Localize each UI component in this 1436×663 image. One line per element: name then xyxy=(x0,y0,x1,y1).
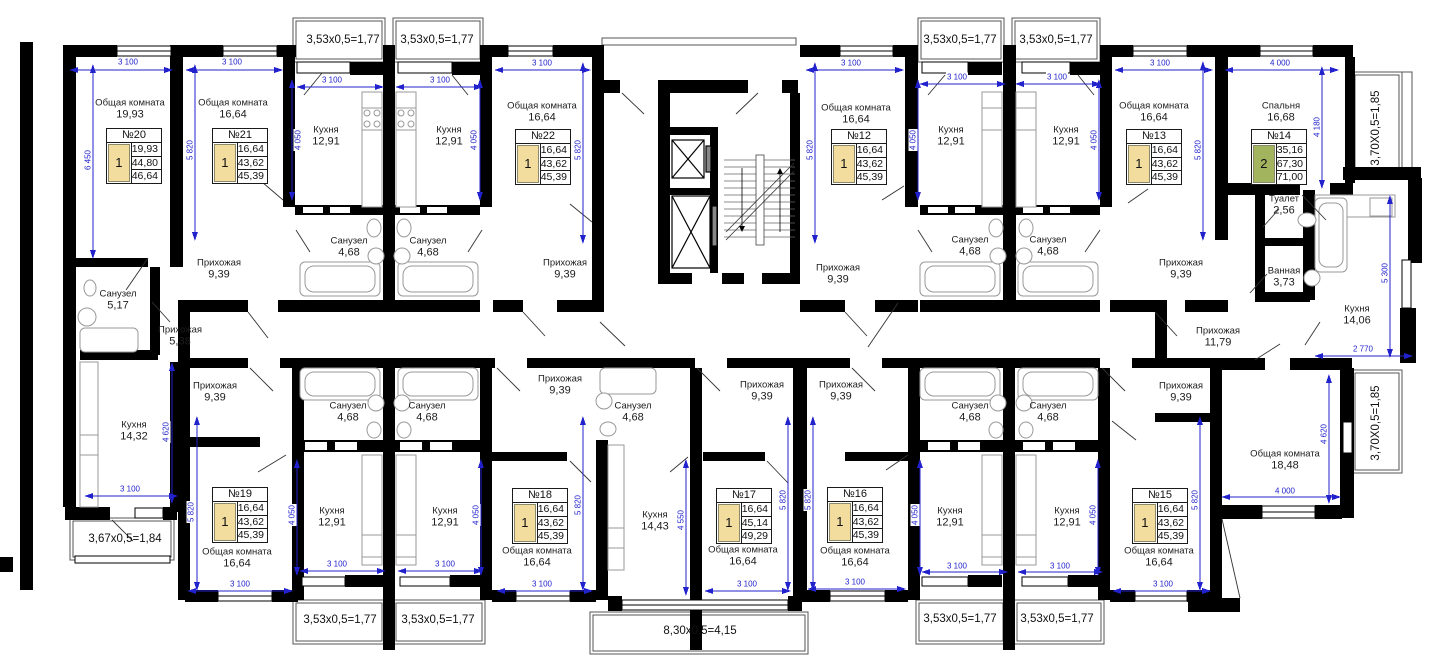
dim-label: 4 050 xyxy=(288,504,297,526)
room-label: Санузел4,68 xyxy=(614,401,651,424)
dim-label: 3 100 xyxy=(946,73,968,82)
room-label: Кухня14,06 xyxy=(1343,304,1371,327)
dim-label: 3 100 xyxy=(119,485,141,494)
dim-label: 3 100 xyxy=(1152,580,1174,589)
room-count: 1 xyxy=(214,503,236,541)
apartment-card-15: №15 1 16,6443,6245,39 xyxy=(1132,488,1188,544)
apartment-number: №13 xyxy=(1127,130,1181,144)
room-label: Прихожая9,39 xyxy=(740,380,784,403)
dim-label: 3 100 xyxy=(326,560,348,569)
unit-area: 43,62 xyxy=(541,158,570,172)
unit-area: 43,62 xyxy=(1158,517,1187,531)
balcony-dim-label: 3,53x0,5=1,77 xyxy=(306,34,379,46)
dim-label: 3 100 xyxy=(531,580,553,589)
room-label: Спальня16,68 xyxy=(1262,101,1300,124)
room-label: Общая комната16,64 xyxy=(1119,101,1189,124)
apartment-card-18: №18 1 16,6443,6245,39 xyxy=(512,488,568,544)
dim-label: 4 050 xyxy=(909,129,918,151)
dim-label: 4 550 xyxy=(677,509,686,531)
dim-label: 3 100 xyxy=(946,562,968,571)
room-count: 1 xyxy=(718,504,740,542)
unit-area: 43,62 xyxy=(857,158,886,172)
dim-label: 2 770 xyxy=(1352,345,1374,354)
living-area: 16,64 xyxy=(853,502,882,516)
room-label: Кухня12,91 xyxy=(318,506,346,529)
room-label: Прихожая5,38 xyxy=(158,325,202,348)
apartment-number: №16 xyxy=(828,488,882,502)
dim-label: 3 100 xyxy=(1049,562,1071,571)
dim-label: 5 820 xyxy=(186,139,195,161)
living-area: 16,64 xyxy=(857,144,886,158)
total-area: 46,64 xyxy=(132,170,161,183)
balcony-dim-label: 3,53x0,5=1,77 xyxy=(1019,34,1092,46)
balcony-dim-label: 3,53x0,5=1,77 xyxy=(401,614,474,626)
room-count: 1 xyxy=(108,144,130,182)
dim-label: 3 100 xyxy=(844,578,866,587)
room-label: Санузел4,68 xyxy=(1029,235,1066,258)
dim-label: 4 000 xyxy=(1269,59,1291,68)
balcony-dim-label: 8,30x0,5=4,15 xyxy=(663,625,736,637)
dim-label: 4 050 xyxy=(294,129,303,151)
unit-area: 45,14 xyxy=(742,517,771,531)
room-label: Прихожая9,39 xyxy=(538,374,582,397)
dim-label: 4 000 xyxy=(1274,487,1296,496)
room-label: Общая комната18,48 xyxy=(1250,449,1320,472)
dim-label: 4 050 xyxy=(1089,504,1098,526)
living-area: 16,64 xyxy=(238,502,267,516)
apartment-number: №17 xyxy=(717,489,771,503)
living-area: 16,64 xyxy=(238,143,267,157)
dim-label: 3 100 xyxy=(221,58,243,67)
room-label: Кухня12,91 xyxy=(936,506,964,529)
room-label: Кухня14,32 xyxy=(120,420,148,443)
apartment-card-12: №12 1 16,6443,6245,39 xyxy=(831,129,887,185)
room-label: Общая комната16,64 xyxy=(507,101,577,124)
room-label: Прихожая9,39 xyxy=(193,381,237,404)
room-label: Кухня12,91 xyxy=(435,125,463,148)
dim-label: 5 820 xyxy=(779,489,788,511)
total-area: 45,39 xyxy=(857,171,886,184)
dim-label: 4 050 xyxy=(470,129,479,151)
room-count: 1 xyxy=(829,503,851,541)
balcony-dim-label: 3,53x0,5=1,77 xyxy=(923,613,996,625)
room-label: Прихожая9,39 xyxy=(1159,258,1203,281)
room-label: Санузел4,68 xyxy=(951,235,988,258)
balcony-dim-label: 3,53x0,5=1,77 xyxy=(1020,613,1093,625)
room-count: 1 xyxy=(833,145,855,183)
room-label: Общая комната16,64 xyxy=(202,547,272,570)
floor-plan: Общая комната19,93 Общая комната16,64 Пр… xyxy=(0,0,1436,663)
room-label: Кухня12,91 xyxy=(1052,125,1080,148)
room-label: Санузел4,68 xyxy=(408,401,445,424)
dim-label: 5 300 xyxy=(1381,262,1390,284)
total-area: 45,39 xyxy=(1158,530,1187,543)
room-label: Прихожая9,39 xyxy=(1159,381,1203,404)
dim-label: 4 050 xyxy=(472,504,481,526)
dim-label: 5 820 xyxy=(1194,139,1203,161)
dim-label: 3 100 xyxy=(321,76,343,85)
room-count: 1 xyxy=(1128,145,1150,183)
room-label: Санузел5,17 xyxy=(99,289,136,312)
room-label: Кухня14,43 xyxy=(641,510,669,533)
apartment-number: №22 xyxy=(516,130,570,144)
room-label: Прихожая9,39 xyxy=(543,258,587,281)
room-count: 2 xyxy=(1253,145,1275,183)
total-area: 45,39 xyxy=(853,529,882,542)
room-label: Кухня12,91 xyxy=(1053,506,1081,529)
room-label: Кухня12,91 xyxy=(431,506,459,529)
apartment-number: №20 xyxy=(107,129,161,143)
room-label: Прихожая9,39 xyxy=(819,380,863,403)
dim-label: 5 820 xyxy=(804,489,813,511)
dim-label: 6 450 xyxy=(84,149,93,171)
apartment-card-22: №22 1 16,6443,6245,39 xyxy=(515,129,571,185)
room-label: Прихожая9,39 xyxy=(197,258,241,281)
room-label: Прихожая9,39 xyxy=(816,263,860,286)
dim-label: 3 100 xyxy=(117,58,139,67)
room-count: 1 xyxy=(514,504,536,542)
room-label: Санузел4,68 xyxy=(409,236,446,259)
total-area: 45,39 xyxy=(541,171,570,184)
unit-area: 44,80 xyxy=(132,157,161,171)
room-label: Общая комната19,93 xyxy=(95,98,165,121)
dim-label: 3 100 xyxy=(434,560,456,569)
dim-label: 3 100 xyxy=(736,580,758,589)
apartment-number: №21 xyxy=(213,129,267,143)
apartment-number: №19 xyxy=(213,488,267,502)
room-label: Общая комната16,64 xyxy=(198,98,268,121)
unit-area: 43,62 xyxy=(538,517,567,531)
total-area: 49,29 xyxy=(742,530,771,543)
total-area: 45,39 xyxy=(1152,171,1181,184)
dim-label: 4 180 xyxy=(1313,116,1322,138)
dim-label: 3 100 xyxy=(1046,73,1068,82)
total-area: 45,39 xyxy=(238,170,267,183)
total-area: 45,39 xyxy=(238,529,267,542)
room-label: Общая комната16,64 xyxy=(821,103,891,126)
living-area: 16,64 xyxy=(742,503,771,517)
dim-label: 5 820 xyxy=(806,139,815,161)
total-area: 45,39 xyxy=(538,530,567,543)
balcony-dim-label: 3,53x0,5=1,77 xyxy=(303,614,376,626)
room-label: Общая комната16,64 xyxy=(502,546,572,569)
dim-label: 4 620 xyxy=(1320,423,1329,445)
room-count: 1 xyxy=(517,145,539,183)
unit-area: 67,30 xyxy=(1277,158,1306,172)
room-count: 1 xyxy=(214,144,236,182)
apartment-card-19: №19 1 16,6443,6245,39 xyxy=(212,487,268,543)
dim-label: 3 100 xyxy=(229,580,251,589)
room-count: 1 xyxy=(1134,504,1156,542)
apartment-number: №12 xyxy=(832,130,886,144)
balcony-dim-label: 3,70X0,5=1,85 xyxy=(1370,90,1382,165)
apartment-card-14: №14 2 35,1667,3071,00 xyxy=(1251,129,1307,185)
dim-label: 5 820 xyxy=(574,494,583,516)
apartment-card-21: №21 1 16,6443,6245,39 xyxy=(212,128,268,184)
total-area: 71,00 xyxy=(1277,171,1306,184)
dim-label: 3 100 xyxy=(1149,59,1171,68)
unit-area: 43,62 xyxy=(853,516,882,530)
balcony-dim-label: 3,53x0,5=1,77 xyxy=(400,34,473,46)
dim-label: 4 050 xyxy=(1090,129,1099,151)
dim-label: 5 820 xyxy=(574,139,583,161)
dim-label: 3 100 xyxy=(840,59,862,68)
balcony-dim-label: 3,67x0,5=1,84 xyxy=(88,533,161,545)
room-label: Санузел4,68 xyxy=(951,401,988,424)
unit-area: 43,62 xyxy=(238,516,267,530)
room-label: Санузел4,68 xyxy=(330,236,367,259)
room-label: Санузел4,68 xyxy=(329,401,366,424)
apartment-card-17: №17 1 16,6445,1449,29 xyxy=(716,488,772,544)
room-label: Прихожая11,79 xyxy=(1196,326,1240,349)
dim-label: 4 050 xyxy=(911,504,920,526)
balcony-dim-label: 3,70X0,5=1,85 xyxy=(1370,385,1382,460)
balcony-dim-label: 3,53x0,5=1,77 xyxy=(923,34,996,46)
staircase xyxy=(724,155,795,245)
dim-label: 3 100 xyxy=(531,59,553,68)
room-label: Общая комната16,64 xyxy=(708,545,778,568)
unit-area: 43,62 xyxy=(238,157,267,171)
apartment-number: №15 xyxy=(1133,489,1187,503)
room-label: Общая комната16,64 xyxy=(1124,546,1194,569)
room-label: Ванная3,73 xyxy=(1268,266,1301,289)
apartment-number: №14 xyxy=(1252,130,1306,144)
living-area: 19,93 xyxy=(132,143,161,157)
room-label: Кухня12,91 xyxy=(937,125,965,148)
apartment-card-16: №16 1 16,6443,6245,39 xyxy=(827,487,883,543)
dim-label: 3 100 xyxy=(429,76,451,85)
room-label: Кухня12,91 xyxy=(312,125,340,148)
unit-area: 43,62 xyxy=(1152,158,1181,172)
room-label: Санузел4,68 xyxy=(1029,401,1066,424)
apartment-number: №18 xyxy=(513,489,567,503)
dim-label: 5 820 xyxy=(187,501,196,523)
living-area: 16,64 xyxy=(541,144,570,158)
elevator-core xyxy=(672,140,717,268)
dim-label: 4 620 xyxy=(162,421,171,443)
room-label: Туалет2,56 xyxy=(1269,194,1299,217)
living-area: 16,64 xyxy=(1158,503,1187,517)
dim-label: 5 820 xyxy=(1191,489,1200,511)
living-area: 16,64 xyxy=(538,503,567,517)
room-label: Общая комната16,64 xyxy=(820,546,890,569)
living-area: 35,16 xyxy=(1277,144,1306,158)
apartment-card-20: №20 1 19,9344,8046,64 xyxy=(106,128,162,184)
apartment-card-13: №13 1 16,6443,6245,39 xyxy=(1126,129,1182,185)
living-area: 16,64 xyxy=(1152,144,1181,158)
